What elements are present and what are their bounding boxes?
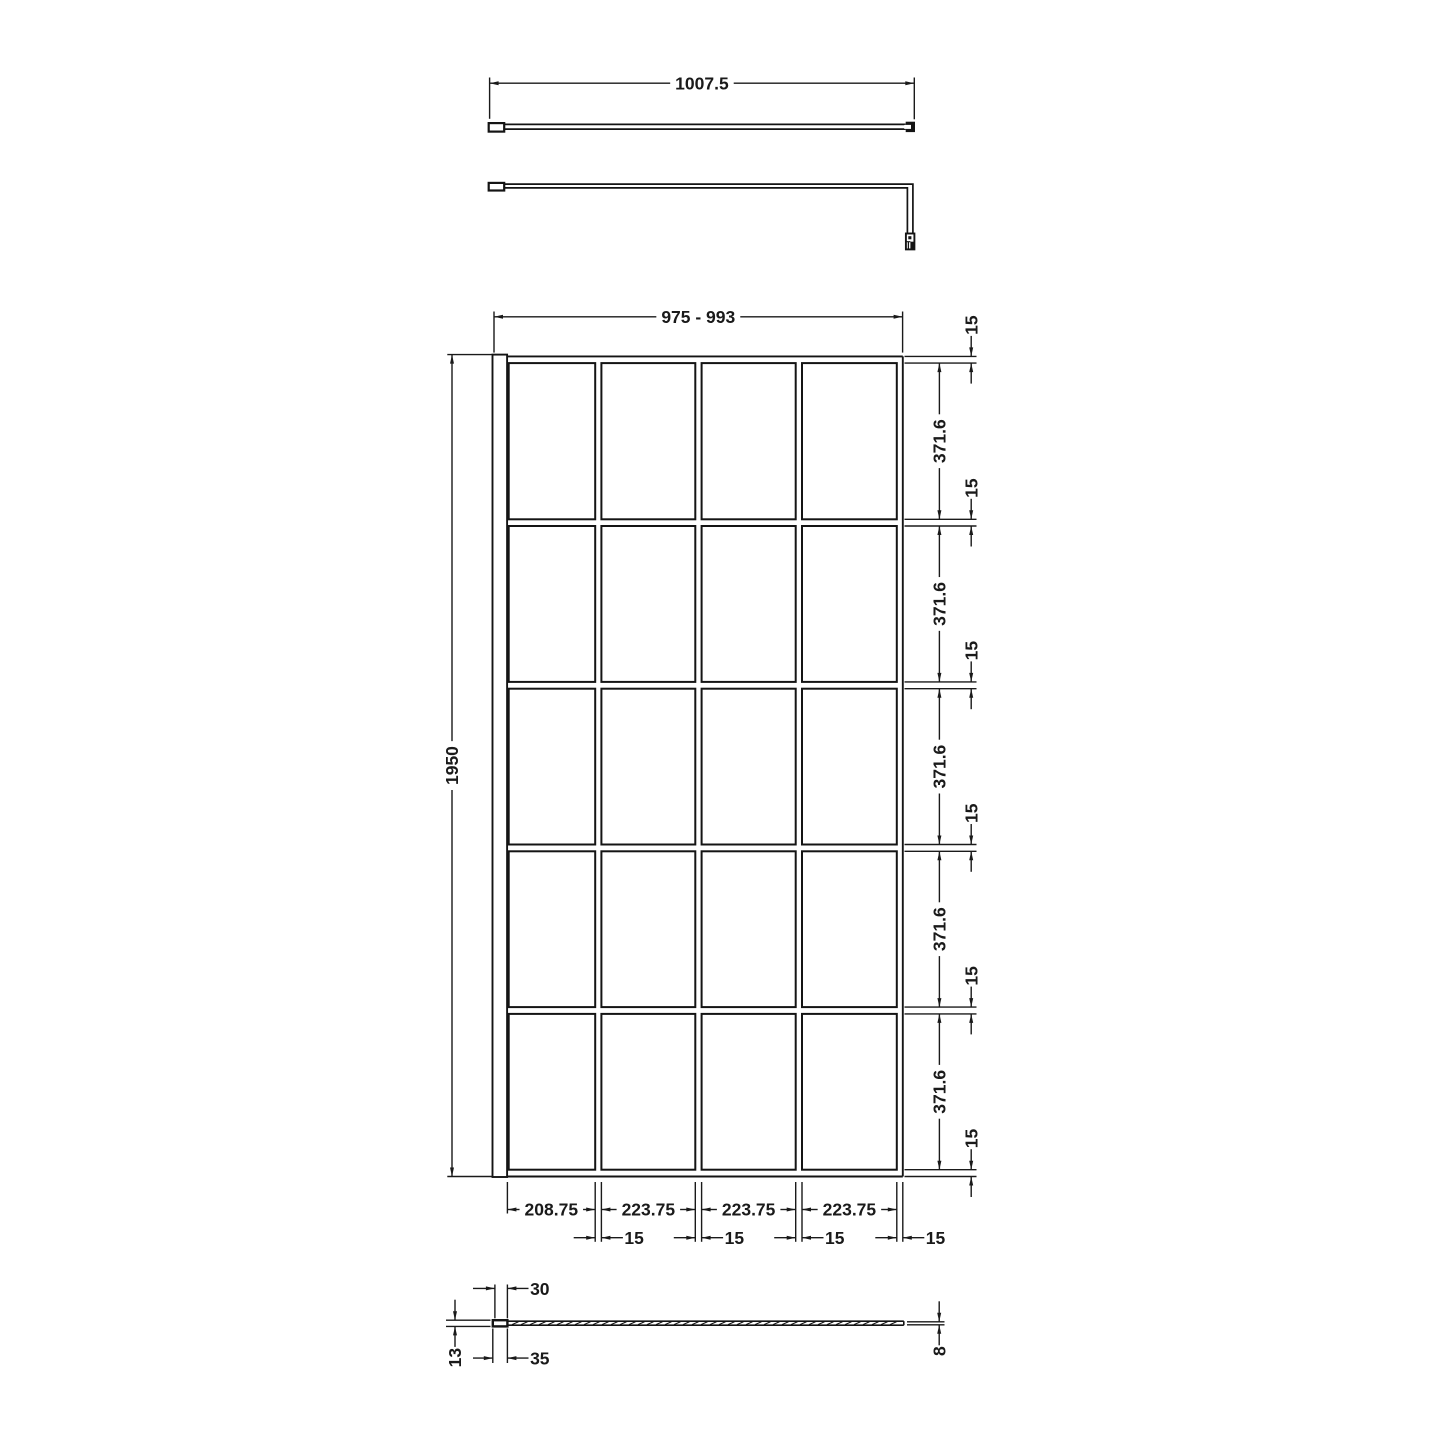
svg-text:15: 15: [725, 1228, 745, 1248]
svg-text:371.6: 371.6: [930, 1070, 950, 1114]
svg-text:15: 15: [926, 1228, 946, 1248]
svg-text:371.6: 371.6: [930, 744, 950, 788]
svg-text:208.75: 208.75: [525, 1200, 579, 1220]
svg-text:1007.5: 1007.5: [675, 73, 729, 93]
svg-text:13: 13: [445, 1348, 465, 1368]
svg-text:223.75: 223.75: [622, 1200, 676, 1220]
svg-text:975 - 993: 975 - 993: [661, 307, 735, 327]
svg-text:35: 35: [530, 1349, 550, 1369]
svg-text:1950: 1950: [442, 746, 462, 785]
svg-text:223.75: 223.75: [823, 1200, 877, 1220]
svg-text:371.6: 371.6: [930, 419, 950, 463]
svg-text:15: 15: [961, 315, 981, 335]
svg-text:15: 15: [961, 478, 981, 498]
svg-text:15: 15: [961, 803, 981, 823]
svg-text:15: 15: [961, 966, 981, 986]
svg-text:371.6: 371.6: [930, 582, 950, 626]
svg-text:15: 15: [961, 1128, 981, 1148]
svg-text:15: 15: [825, 1228, 845, 1248]
svg-text:8: 8: [929, 1346, 949, 1356]
svg-text:30: 30: [530, 1279, 550, 1299]
svg-text:15: 15: [961, 641, 981, 661]
svg-text:223.75: 223.75: [722, 1200, 776, 1220]
svg-text:371.6: 371.6: [930, 907, 950, 951]
svg-text:15: 15: [624, 1228, 644, 1248]
